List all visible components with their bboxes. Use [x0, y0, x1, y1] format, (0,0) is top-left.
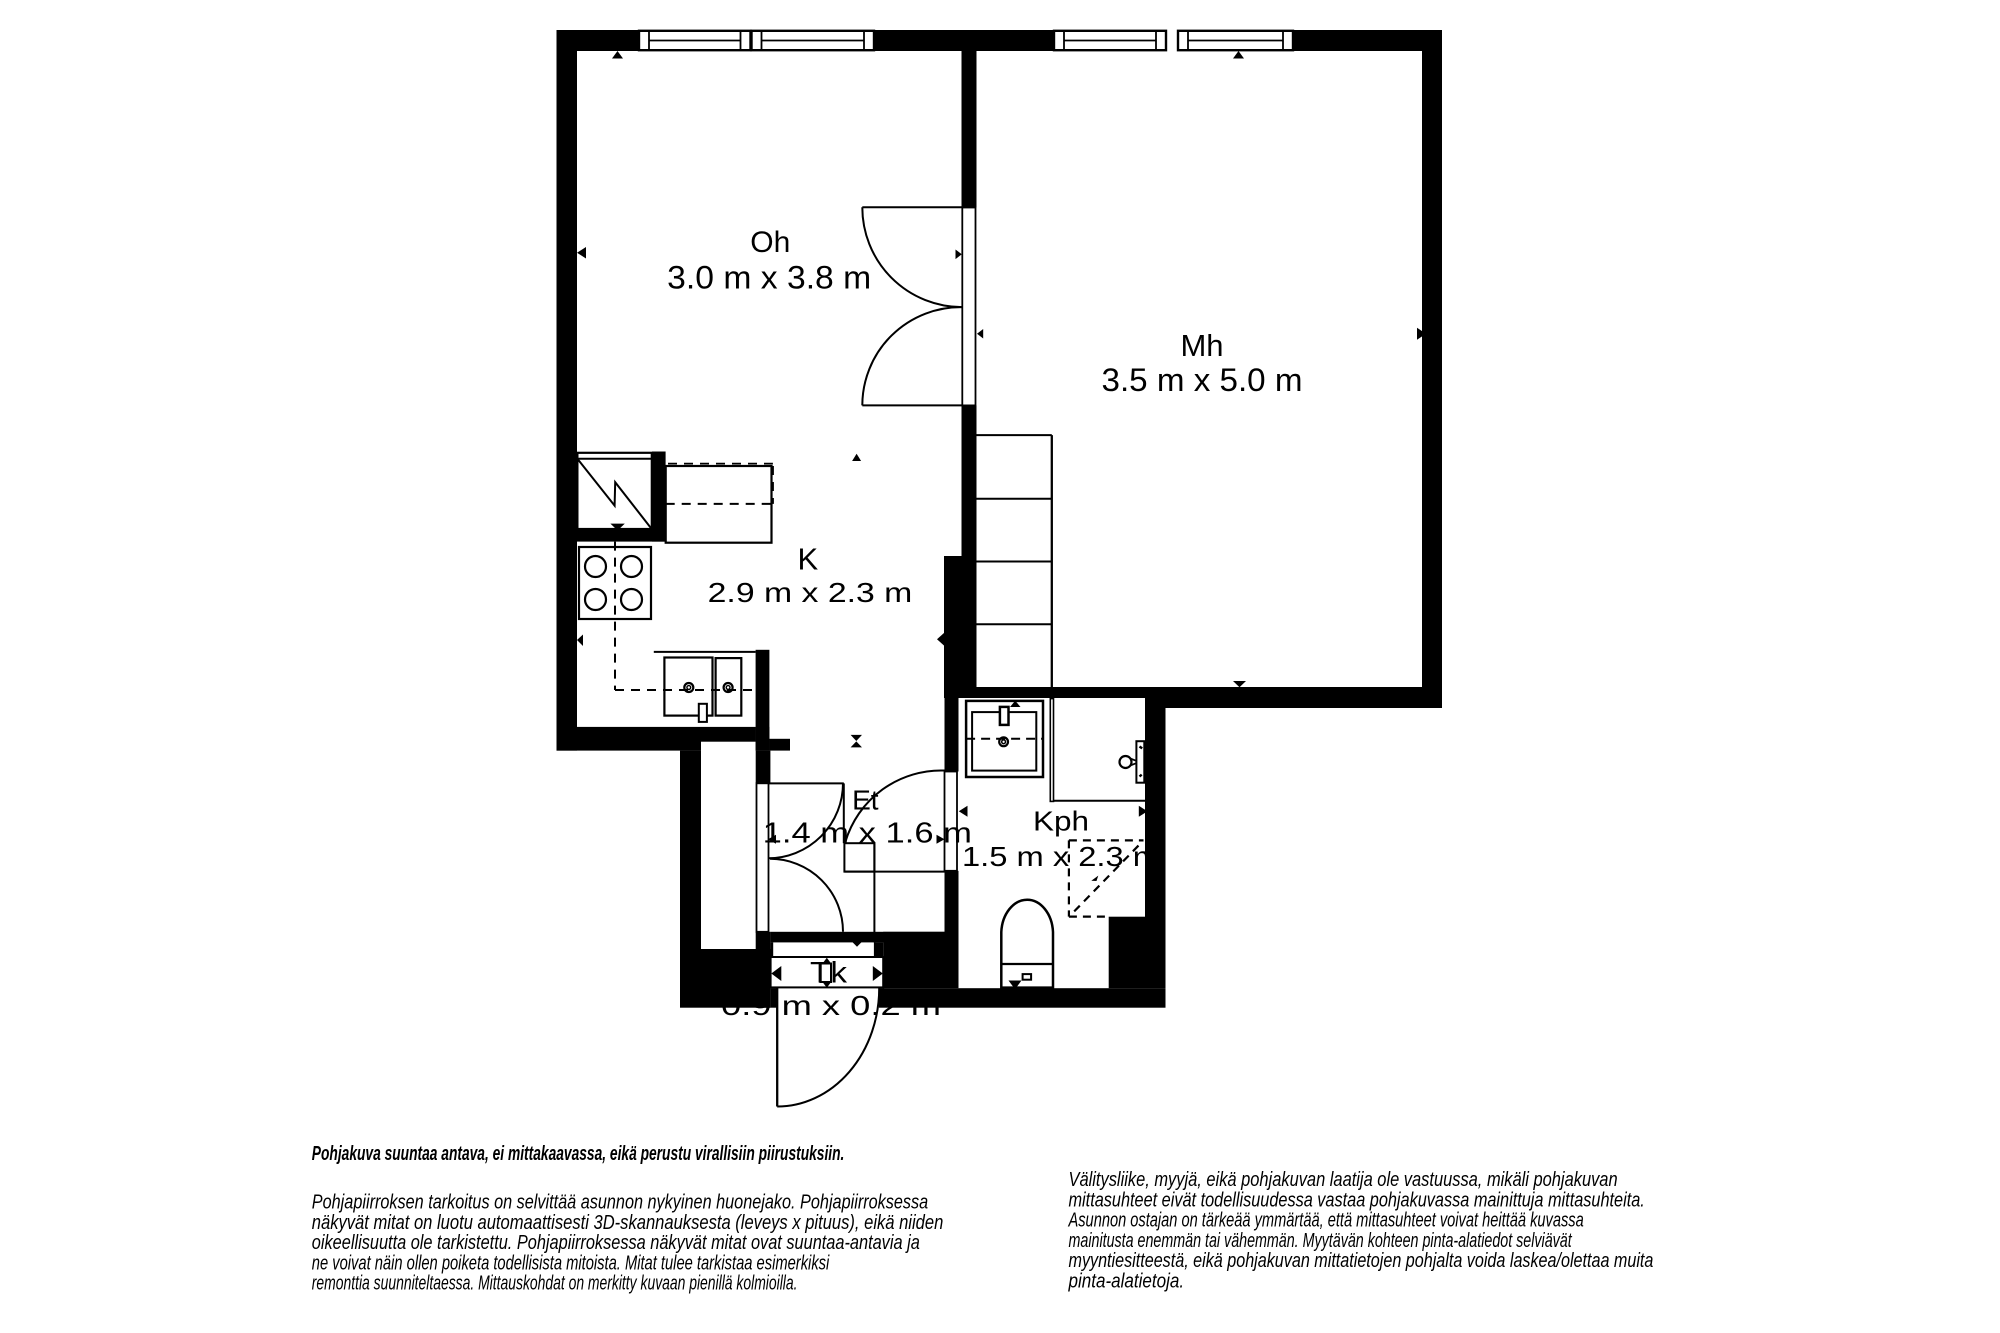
svg-text:Tk: Tk — [810, 956, 848, 989]
svg-text:Pohjapiirroksen tarkoitus on s: Pohjapiirroksen tarkoitus on selvittää a… — [312, 1192, 928, 1214]
svg-text:Mh: Mh — [1180, 328, 1223, 363]
svg-text:ne voivat näin ollen poiketa t: ne voivat näin ollen poiketa todellisist… — [312, 1252, 830, 1274]
svg-text:Et: Et — [852, 785, 879, 816]
svg-text:3.0 m x 3.8 m: 3.0 m x 3.8 m — [667, 259, 871, 295]
svg-text:1.4 m x 1.6 m: 1.4 m x 1.6 m — [763, 818, 972, 850]
svg-text:Oh: Oh — [750, 226, 790, 259]
svg-text:oikeellisuutta ole tarkistettu: oikeellisuutta ole tarkistettu. Pohjapii… — [312, 1232, 920, 1254]
svg-text:Välitysliike, myyjä, eikä pohj: Välitysliike, myyjä, eikä pohjakuvan laa… — [1069, 1169, 1618, 1191]
svg-text:mainitusta enemmän tai vähemmä: mainitusta enemmän tai vähemmän. Myytävä… — [1069, 1230, 1573, 1252]
svg-text:Kph: Kph — [1033, 806, 1089, 837]
svg-text:myyntiesitteestä, eikä pohjaku: myyntiesitteestä, eikä pohjakuvan mittat… — [1069, 1250, 1654, 1272]
svg-text:mittasuhteet eivät todellisuud: mittasuhteet eivät todellisuudessa vasta… — [1069, 1189, 1645, 1211]
svg-text:Pohjakuva suuntaa antava, ei m: Pohjakuva suuntaa antava, ei mittakaavas… — [312, 1143, 845, 1165]
svg-text:remonttia suunniteltaessa. Mit: remonttia suunniteltaessa. Mittauskohdat… — [312, 1273, 798, 1295]
svg-text:näkyvät mitat on luotu automaa: näkyvät mitat on luotu automaattisesti 3… — [312, 1212, 944, 1234]
svg-text:2.9 m x 2.3 m: 2.9 m x 2.3 m — [708, 577, 913, 608]
svg-text:K: K — [797, 542, 818, 577]
svg-text:3.5 m x 5.0 m: 3.5 m x 5.0 m — [1102, 362, 1303, 398]
svg-text:1.5 m x 2.3 m: 1.5 m x 2.3 m — [962, 841, 1160, 872]
svg-text:pinta-alatietoja.: pinta-alatietoja. — [1068, 1271, 1184, 1293]
svg-text:Asunnon ostajan on tärkeää ymm: Asunnon ostajan on tärkeää ymmärtää, ett… — [1068, 1210, 1584, 1232]
